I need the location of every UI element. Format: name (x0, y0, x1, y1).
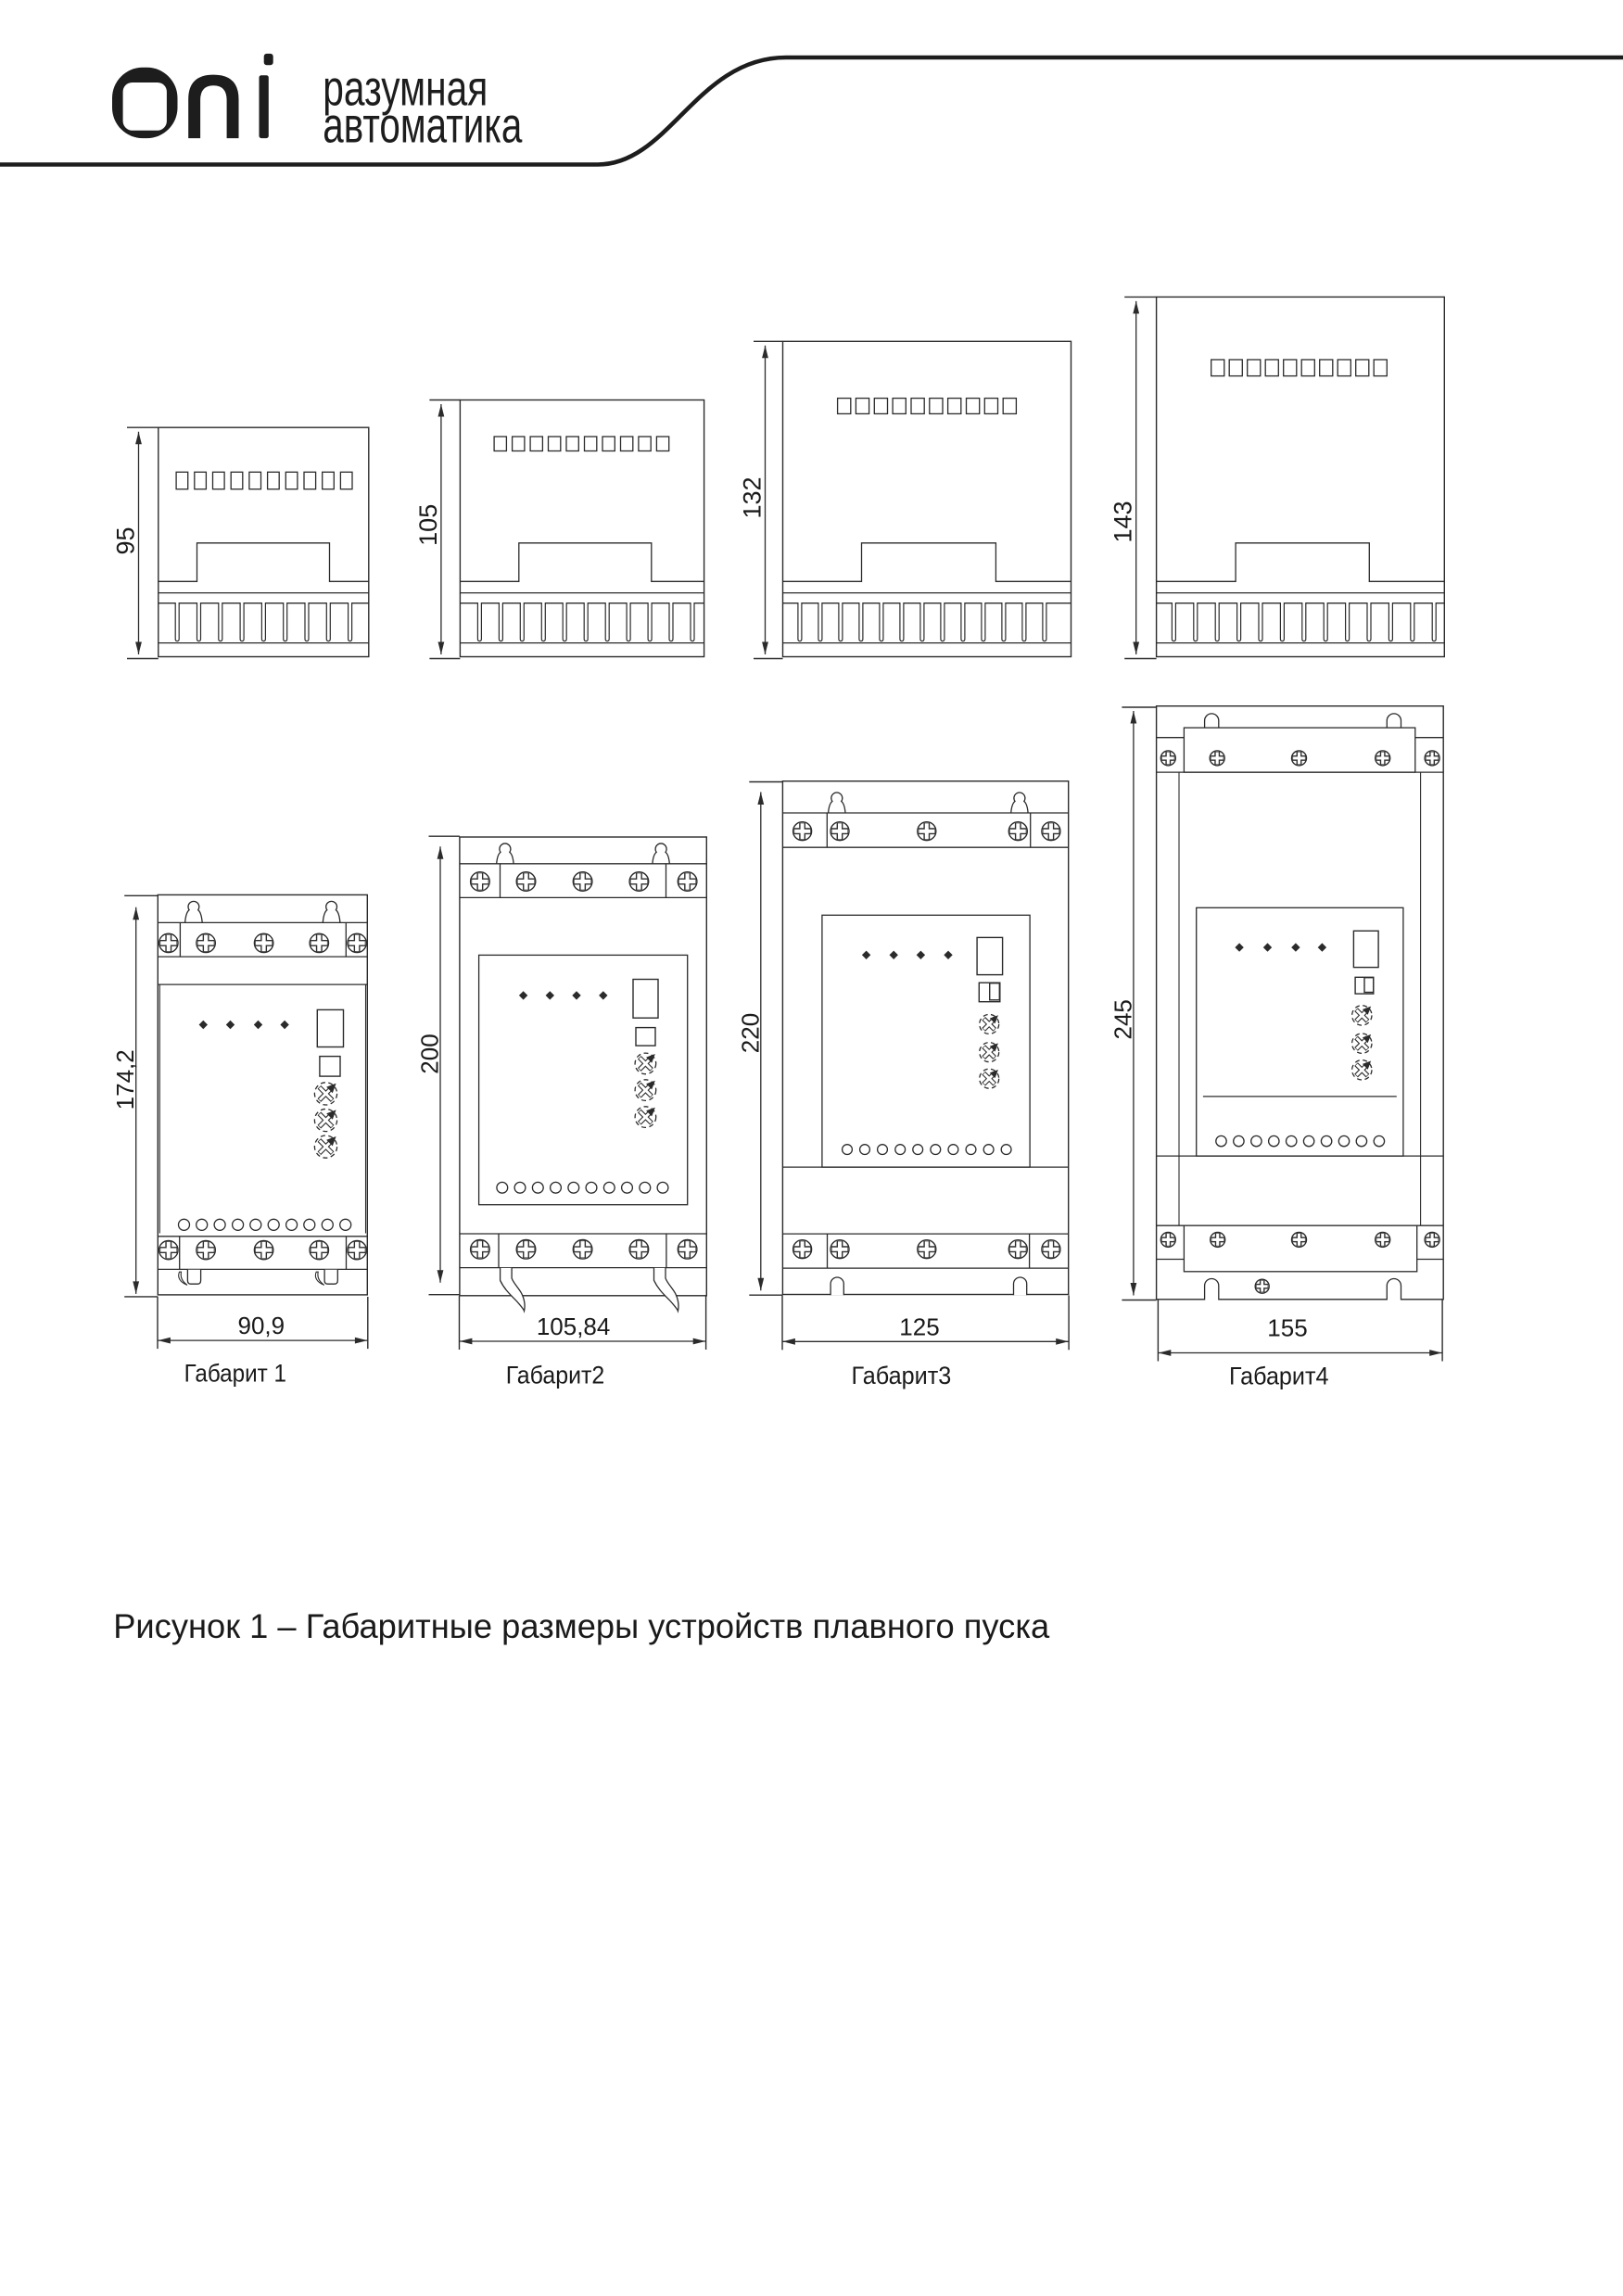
svg-text:143: 143 (1109, 501, 1137, 542)
svg-text:90,9: 90,9 (237, 1312, 285, 1339)
svg-text:автоматика: автоматика (323, 98, 523, 154)
svg-text:Габарит4: Габарит4 (1229, 1363, 1329, 1390)
svg-text:125: 125 (899, 1313, 939, 1340)
svg-text:155: 155 (1267, 1313, 1307, 1341)
svg-text:174,2: 174,2 (111, 1049, 139, 1110)
svg-text:200: 200 (416, 1034, 444, 1073)
svg-text:Рисунок 1 – Габаритные размеры: Рисунок 1 – Габаритные размеры устройств… (113, 1607, 1049, 1645)
svg-text:105: 105 (414, 504, 442, 546)
svg-text:245: 245 (1109, 999, 1136, 1039)
svg-text:Габарит2: Габарит2 (506, 1362, 605, 1389)
svg-text:Габарит 1: Габарит 1 (184, 1360, 286, 1388)
svg-text:220: 220 (736, 1013, 764, 1053)
svg-text:105,84: 105,84 (537, 1313, 611, 1340)
svg-text:Габарит3: Габарит3 (852, 1362, 952, 1389)
svg-text:95: 95 (112, 526, 140, 554)
svg-text:132: 132 (739, 476, 767, 518)
